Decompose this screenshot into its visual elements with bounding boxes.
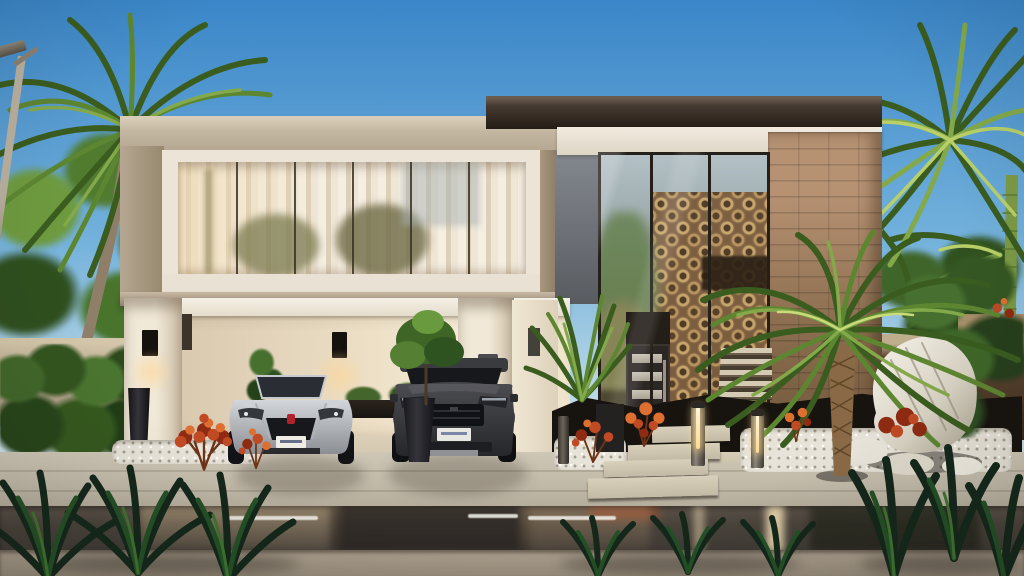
side-mirror [328, 400, 338, 407]
foreground-foliage-right [844, 438, 1024, 576]
bollard-light [691, 402, 705, 466]
window-mullion [468, 162, 470, 274]
headlight-glint [334, 412, 338, 416]
red-badge [287, 414, 295, 424]
orange-foliage [785, 408, 811, 430]
window-sill [162, 274, 540, 292]
trunk-reflection [204, 170, 213, 274]
window-mullion [410, 162, 412, 274]
drl-strip [482, 398, 506, 401]
orange-accent-plant [772, 390, 820, 448]
tree-foliage [412, 310, 444, 334]
grille-bar [428, 417, 480, 419]
plate-characters [280, 440, 302, 443]
sconce-light-glow [128, 350, 174, 394]
red-foliage [572, 420, 614, 447]
red-flower-cluster [984, 286, 1024, 338]
bollard-light [558, 416, 569, 464]
red-foliage [878, 408, 927, 438]
tree-reflection [233, 214, 319, 274]
ribbon-window [178, 162, 526, 274]
window-mullion [352, 162, 354, 274]
window-mullion [294, 162, 296, 274]
side-mirror [510, 394, 518, 402]
tree-foliage [424, 337, 464, 367]
lane-dash [468, 514, 518, 518]
plate-characters [441, 432, 467, 435]
skid-plate [430, 450, 478, 456]
foreground-foliage-center [528, 512, 848, 576]
orange-foliage [625, 402, 664, 437]
foreground-foliage-left [0, 448, 288, 576]
red-foliage [993, 298, 1014, 318]
concrete-jamb-left [120, 146, 164, 306]
rendering-canvas [0, 0, 1024, 576]
bollard-light [751, 410, 764, 468]
car-reflection [330, 506, 530, 552]
orange-accent-plant [616, 390, 672, 450]
red-accent-plant [562, 406, 624, 464]
upper-volume [120, 116, 557, 306]
tree-foliage [390, 341, 426, 369]
window-mullion [236, 162, 238, 274]
potted-tree [378, 300, 474, 410]
flat-roof-slab [486, 96, 882, 129]
windshield [256, 376, 326, 398]
